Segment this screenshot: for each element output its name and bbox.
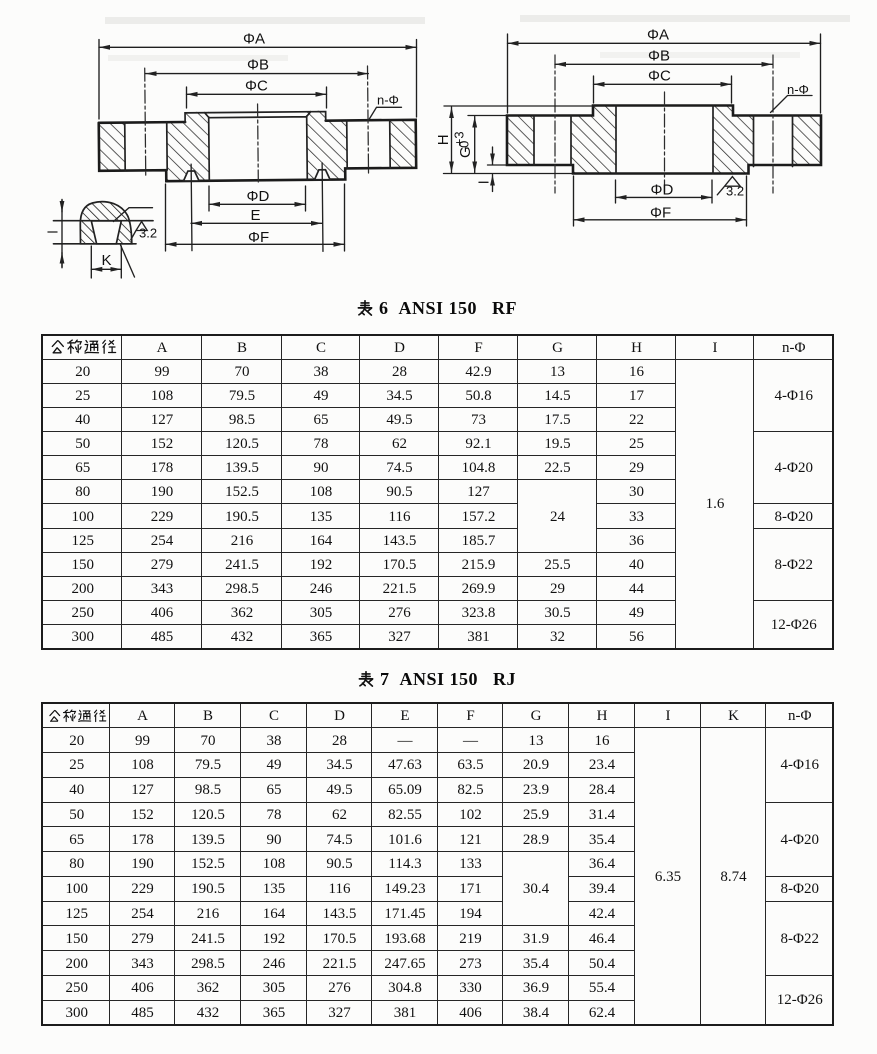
svg-text:ΦB: ΦB: [247, 57, 269, 74]
svg-text:n-Φ: n-Φ: [377, 93, 399, 108]
svg-text:ΦA: ΦA: [647, 27, 669, 44]
svg-text:0: 0: [457, 141, 472, 148]
svg-text:E: E: [251, 207, 261, 224]
svg-text:ΦF: ΦF: [248, 229, 269, 246]
svg-text:ΦC: ΦC: [648, 68, 671, 85]
svg-text:ΦD: ΦD: [247, 188, 270, 205]
svg-text:ΦF: ΦF: [650, 205, 671, 222]
svg-text:ΦC: ΦC: [245, 78, 268, 95]
svg-text:ΦD: ΦD: [651, 182, 674, 199]
svg-text:3.2: 3.2: [139, 226, 157, 241]
svg-text:n-Φ: n-Φ: [787, 82, 809, 97]
svg-text:K: K: [102, 252, 112, 269]
svg-text:3.2: 3.2: [726, 184, 744, 199]
svg-text:ΦA: ΦA: [243, 31, 265, 48]
svg-text:ΦB: ΦB: [648, 48, 670, 65]
svg-text:H: H: [435, 134, 452, 145]
